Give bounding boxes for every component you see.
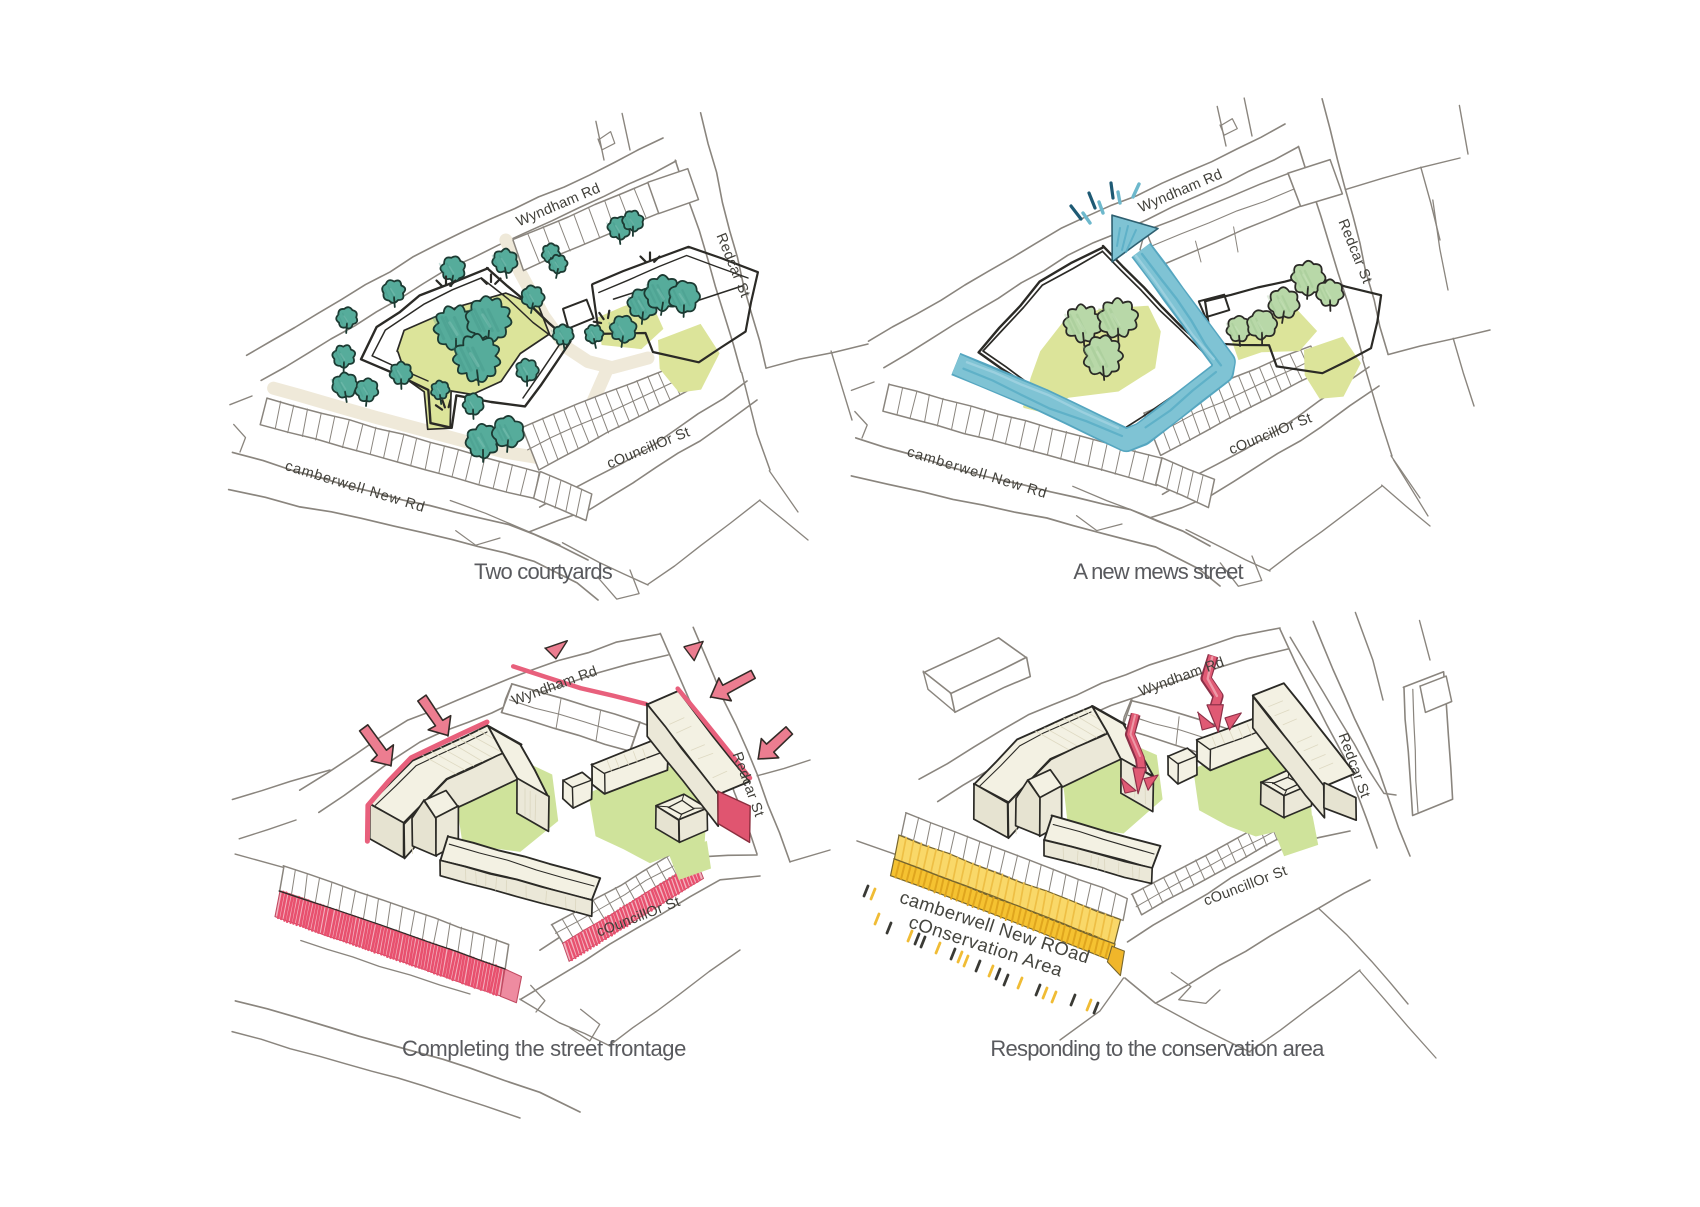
svg-text:Two courtyards: Two courtyards	[474, 559, 613, 584]
svg-text:Responding to the conservation: Responding to the conservation area	[990, 1036, 1325, 1061]
svg-text:A new mews street: A new mews street	[1073, 559, 1243, 584]
svg-text:Completing the street frontage: Completing the street frontage	[402, 1036, 686, 1061]
